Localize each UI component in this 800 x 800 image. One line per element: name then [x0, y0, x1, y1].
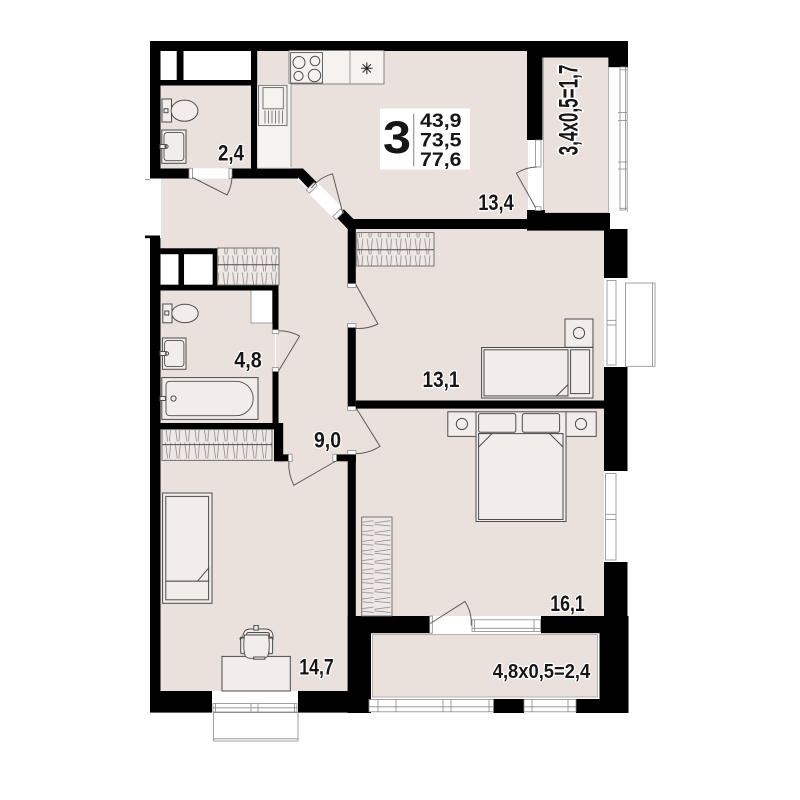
svg-text:9,0: 9,0	[314, 427, 341, 452]
svg-text:2,4: 2,4	[218, 141, 245, 166]
svg-text:4,8x0,5=2,4: 4,8x0,5=2,4	[493, 661, 591, 683]
svg-text:77,6: 77,6	[420, 149, 462, 171]
svg-text:13,1: 13,1	[423, 367, 460, 392]
svg-text:14,7: 14,7	[299, 655, 334, 680]
svg-text:3: 3	[383, 112, 411, 163]
svg-text:13,4: 13,4	[478, 190, 514, 215]
svg-text:4,8: 4,8	[234, 348, 262, 373]
svg-text:16,1: 16,1	[550, 591, 585, 616]
svg-text:3,4x0,5=1,7: 3,4x0,5=1,7	[554, 65, 584, 156]
